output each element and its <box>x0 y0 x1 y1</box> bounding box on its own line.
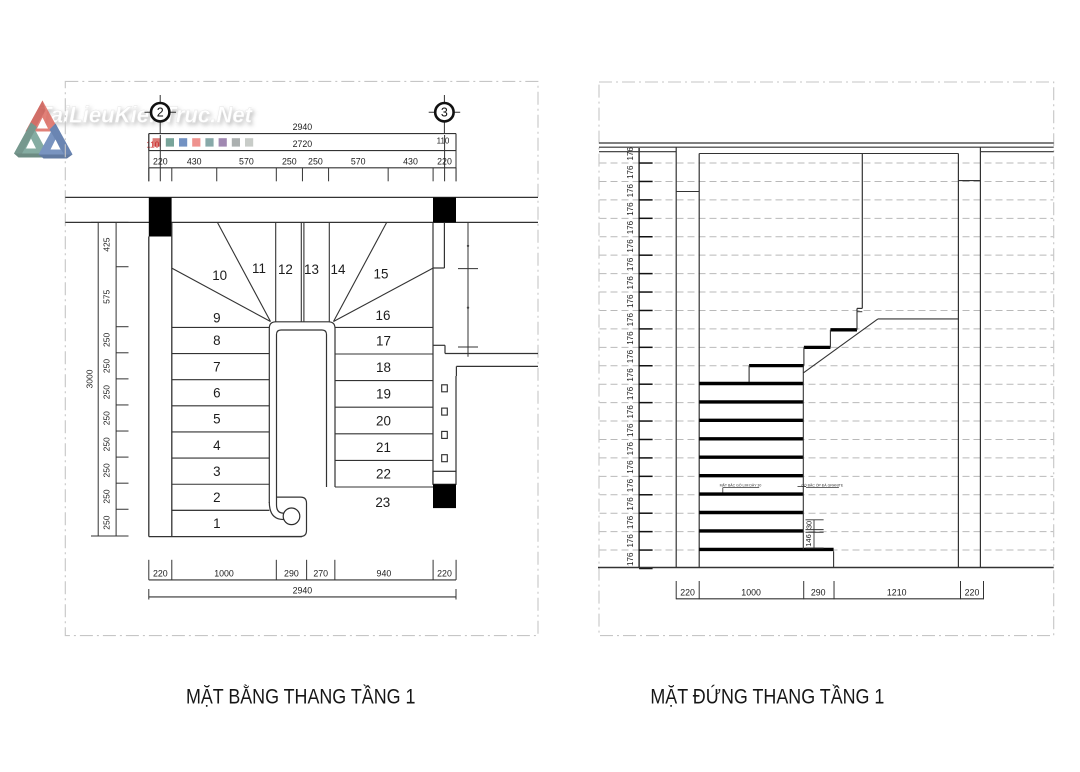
svg-text:30: 30 <box>805 521 814 529</box>
svg-text:176: 176 <box>626 534 635 548</box>
svg-text:10: 10 <box>212 268 227 283</box>
svg-text:430: 430 <box>403 156 418 166</box>
svg-text:940: 940 <box>377 569 392 579</box>
svg-text:13: 13 <box>304 262 319 277</box>
svg-text:250: 250 <box>308 156 323 166</box>
svg-text:17: 17 <box>376 334 391 349</box>
svg-text:6: 6 <box>213 386 220 401</box>
svg-text:176: 176 <box>626 239 635 253</box>
svg-text:1: 1 <box>213 516 220 531</box>
svg-text:7: 7 <box>213 359 220 374</box>
svg-text:250: 250 <box>102 385 112 399</box>
svg-text:3: 3 <box>213 464 220 479</box>
svg-text:MẶT BẬC GỖ LIM DÀY 30: MẶT BẬC GỖ LIM DÀY 30 <box>720 482 762 487</box>
svg-text:176: 176 <box>626 386 635 400</box>
svg-text:430: 430 <box>187 156 202 166</box>
svg-text:220: 220 <box>153 156 168 166</box>
svg-text:250: 250 <box>102 489 112 503</box>
svg-text:2: 2 <box>157 106 164 120</box>
svg-text:270: 270 <box>313 569 328 579</box>
svg-text:5: 5 <box>213 412 220 427</box>
svg-text:1000: 1000 <box>741 587 761 597</box>
svg-text:176: 176 <box>626 515 635 529</box>
svg-text:250: 250 <box>102 463 112 477</box>
svg-text:176: 176 <box>626 460 635 474</box>
svg-text:176: 176 <box>626 478 635 492</box>
svg-text:220: 220 <box>437 156 452 166</box>
svg-text:4: 4 <box>213 438 221 453</box>
svg-text:176: 176 <box>626 276 635 290</box>
svg-text:2: 2 <box>213 490 220 505</box>
svg-text:176: 176 <box>626 497 635 511</box>
svg-text:11: 11 <box>252 261 266 276</box>
svg-text:15: 15 <box>374 267 389 282</box>
svg-text:176: 176 <box>626 257 635 271</box>
svg-text:176: 176 <box>626 331 635 345</box>
svg-text:1000: 1000 <box>214 569 234 579</box>
svg-text:290: 290 <box>811 587 826 597</box>
svg-text:176: 176 <box>626 294 635 308</box>
svg-text:220: 220 <box>153 569 168 579</box>
svg-text:425: 425 <box>102 237 112 251</box>
svg-text:19: 19 <box>376 387 391 402</box>
svg-text:220: 220 <box>680 587 695 597</box>
svg-text:9: 9 <box>213 311 220 326</box>
svg-text:176: 176 <box>626 183 635 197</box>
svg-text:176: 176 <box>626 368 635 382</box>
svg-text:250: 250 <box>102 333 112 347</box>
svg-text:TaiLieuKienTruc.Net: TaiLieuKienTruc.Net <box>38 102 253 128</box>
svg-text:176: 176 <box>626 441 635 455</box>
svg-text:176: 176 <box>626 312 635 326</box>
svg-text:570: 570 <box>351 156 366 166</box>
svg-text:18: 18 <box>376 360 391 375</box>
svg-text:176: 176 <box>626 423 635 437</box>
svg-text:14: 14 <box>331 262 346 277</box>
svg-text:176: 176 <box>626 405 635 419</box>
svg-text:21: 21 <box>376 440 391 455</box>
svg-text:176: 176 <box>626 147 635 161</box>
svg-text:250: 250 <box>102 411 112 425</box>
svg-text:12: 12 <box>278 262 293 277</box>
svg-text:1210: 1210 <box>887 587 907 597</box>
svg-text:176: 176 <box>626 202 635 216</box>
svg-text:110: 110 <box>437 137 450 146</box>
svg-text:220: 220 <box>437 569 452 579</box>
svg-text:250: 250 <box>102 359 112 373</box>
svg-text:146: 146 <box>804 534 813 547</box>
svg-text:20: 20 <box>376 413 391 428</box>
svg-text:250: 250 <box>102 437 112 451</box>
svg-text:176: 176 <box>626 349 635 363</box>
svg-text:16: 16 <box>376 308 391 323</box>
svg-text:3000: 3000 <box>85 369 95 388</box>
svg-text:8: 8 <box>213 333 220 348</box>
svg-text:575: 575 <box>102 289 112 303</box>
svg-text:MẶT BẰNG THANG TẦNG 1: MẶT BẰNG THANG TẦNG 1 <box>186 684 416 709</box>
svg-text:3: 3 <box>441 106 448 120</box>
svg-text:570: 570 <box>239 156 254 166</box>
svg-text:250: 250 <box>282 156 297 166</box>
svg-text:290: 290 <box>284 569 299 579</box>
svg-text:176: 176 <box>626 220 635 234</box>
svg-text:2720: 2720 <box>293 139 313 149</box>
svg-text:220: 220 <box>965 587 980 597</box>
svg-text:CỔ BẬC ỐP ĐÁ GRANITE: CỔ BẬC ỐP ĐÁ GRANITE <box>801 482 843 487</box>
svg-text:176: 176 <box>626 165 635 179</box>
svg-text:23: 23 <box>375 495 390 510</box>
svg-text:176: 176 <box>626 552 635 566</box>
svg-text:22: 22 <box>376 467 391 482</box>
svg-text:250: 250 <box>102 515 112 529</box>
svg-text:MẶT ĐỨNG THANG TẦNG 1: MẶT ĐỨNG THANG TẦNG 1 <box>650 684 884 709</box>
svg-text:2940: 2940 <box>293 586 313 596</box>
svg-text:2940: 2940 <box>293 122 313 132</box>
